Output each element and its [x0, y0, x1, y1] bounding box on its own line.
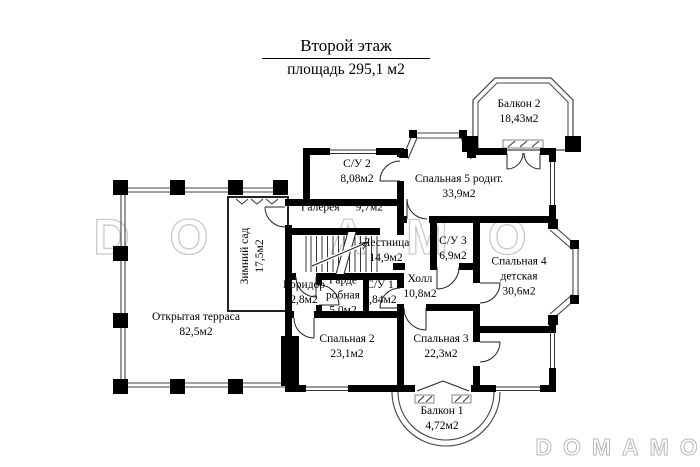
- svg-text:DOMAMO: DOMAMO: [535, 434, 700, 460]
- label-corridor: Коридор 2,8м2: [283, 278, 325, 308]
- label-wc-2: С/У 2 8,08м2: [340, 157, 373, 187]
- label-wc-3: С/У 3 6,9м2: [439, 234, 467, 264]
- label-wardrobe: Гарде робная 5,0м2: [326, 274, 360, 319]
- label-wc-1: С/У 1 3,84м2: [363, 278, 396, 308]
- floor-area: площадь 295,1 м2: [262, 59, 430, 79]
- label-bedroom-2: Спальная 2 23,1м2: [319, 332, 374, 362]
- watermark-corner: DOMAMO: [535, 434, 700, 460]
- floor-title: Второй этаж: [262, 36, 430, 59]
- label-bedroom-5: Спальная 5 родит. 33,9м2: [415, 172, 503, 202]
- label-balcony-2: Балкон 2 18,43м2: [497, 97, 540, 127]
- label-winter-garden: Зимний сад 17,5м2: [238, 228, 268, 285]
- label-stairs: Лестница 14,9м2: [363, 236, 410, 266]
- label-hall: Холл 10,8м2: [403, 272, 436, 302]
- floor-plan-page: DOMAMO DOMAMO: [0, 0, 700, 467]
- label-balcony-1: Балкон 1 4,72м2: [420, 404, 463, 434]
- label-gallery: Галерея 9,7м2: [301, 201, 383, 216]
- label-terrace: Открытая терраса 82,5м2: [152, 310, 240, 340]
- label-bedroom-4: Спальная 4 детская 30,6м2: [491, 255, 546, 300]
- plan-title: Второй этаж площадь 295,1 м2: [262, 36, 430, 79]
- label-bedroom-3: Спальная 3 22,3м2: [413, 332, 468, 362]
